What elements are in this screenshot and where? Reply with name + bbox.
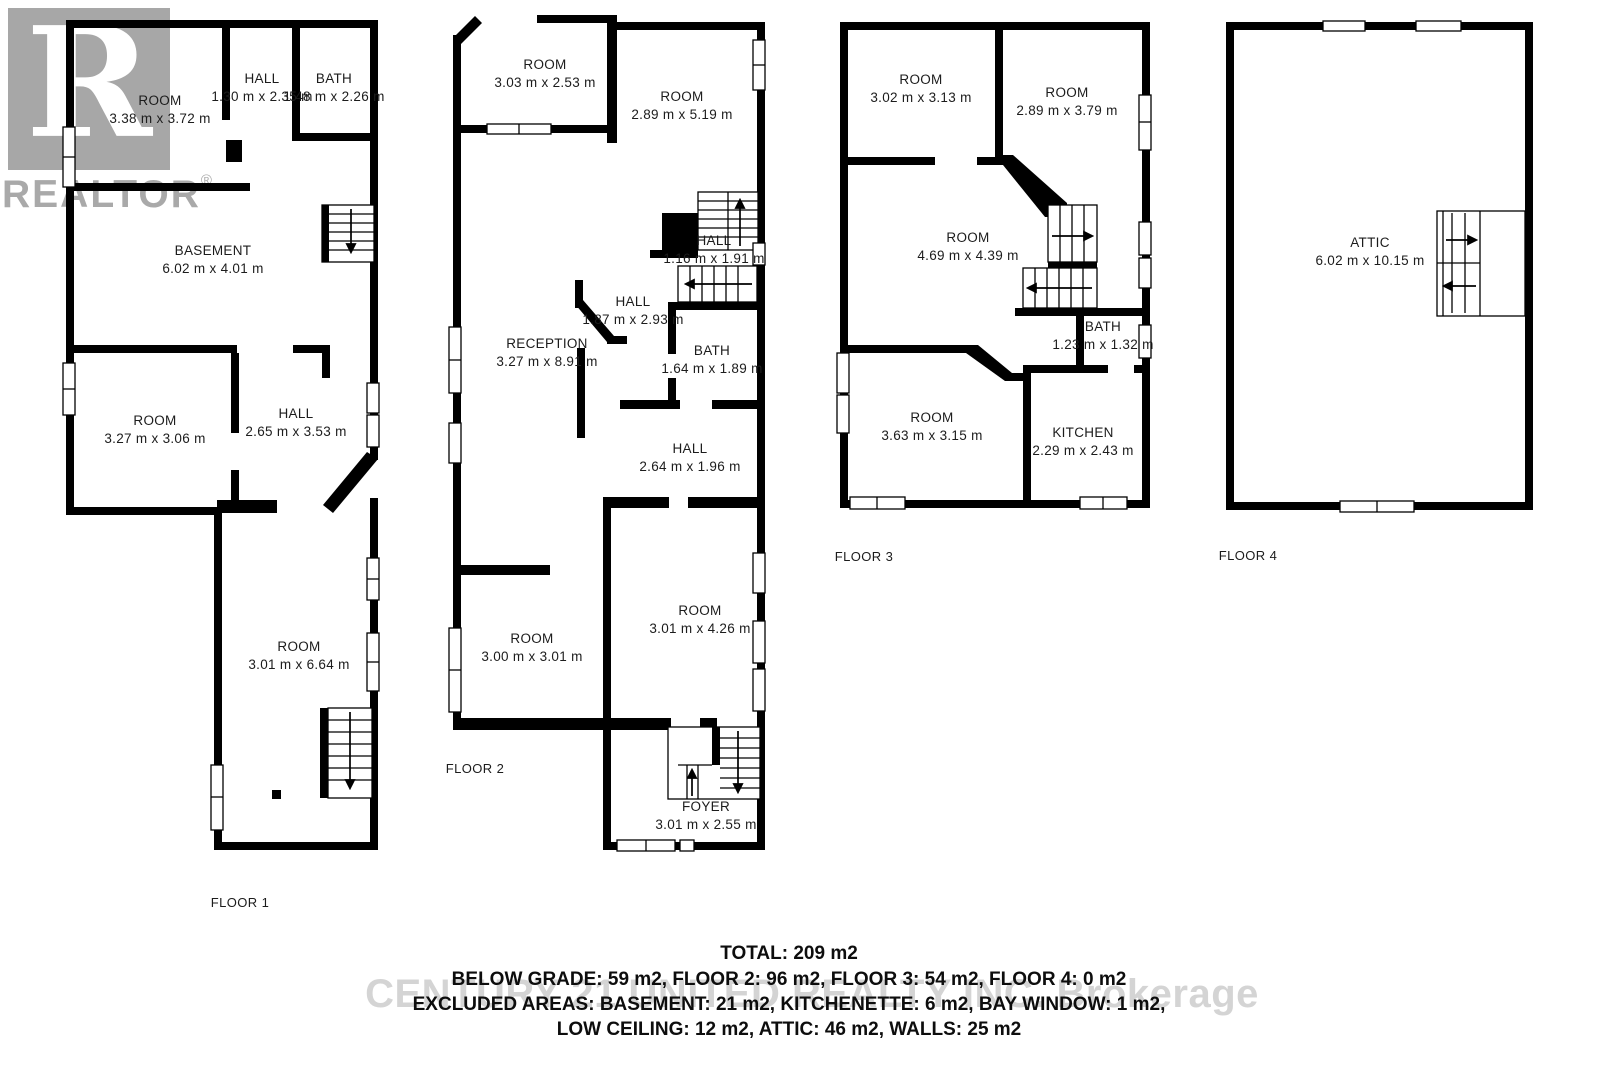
room-label: ATTIC6.02 m x 10.15 m	[1315, 234, 1424, 269]
room-label: ROOM3.02 m x 3.13 m	[870, 71, 971, 106]
room-label: BATH1.48 m x 2.26 m	[283, 70, 384, 105]
room-label: ROOM2.89 m x 3.79 m	[1016, 84, 1117, 119]
floor-caption: FLOOR 1	[211, 895, 269, 910]
floor2-plan	[449, 15, 765, 851]
area-summary: TOTAL: 209 m2 BELOW GRADE: 59 m2, FLOOR …	[0, 941, 1578, 1042]
room-label: ROOM3.03 m x 2.53 m	[494, 56, 595, 91]
room-label: ROOM4.69 m x 4.39 m	[917, 229, 1018, 264]
summary-line: BELOW GRADE: 59 m2, FLOOR 2: 96 m2, FLOO…	[0, 967, 1578, 992]
room-label: ROOM3.01 m x 4.26 m	[649, 602, 750, 637]
room-label: KITCHEN2.29 m x 2.43 m	[1032, 424, 1133, 459]
total-area: TOTAL: 209 m2	[0, 941, 1578, 967]
room-label: BATH1.23 m x 1.32 m	[1052, 318, 1153, 353]
room-label: ROOM3.38 m x 3.72 m	[109, 92, 210, 127]
room-label: ROOM3.01 m x 6.64 m	[248, 638, 349, 673]
room-label: BASEMENT6.02 m x 4.01 m	[162, 242, 263, 277]
room-label: HALL2.65 m x 3.53 m	[245, 405, 346, 440]
room-label: ROOM2.89 m x 5.19 m	[631, 88, 732, 123]
summary-line: LOW CEILING: 12 m2, ATTIC: 46 m2, WALLS:…	[0, 1017, 1578, 1042]
floor-caption: FLOOR 4	[1219, 548, 1277, 563]
room-label: ROOM3.63 m x 3.15 m	[881, 409, 982, 444]
room-label: BATH1.64 m x 1.89 m	[661, 342, 762, 377]
room-label: HALL2.64 m x 1.96 m	[639, 440, 740, 475]
summary-line: EXCLUDED AREAS: BASEMENT: 21 m2, KITCHEN…	[0, 992, 1578, 1017]
room-label: ROOM3.27 m x 3.06 m	[104, 412, 205, 447]
floor-caption: FLOOR 3	[835, 549, 893, 564]
room-label: HALL1.87 m x 2.93 m	[582, 293, 683, 328]
room-label: FOYER3.01 m x 2.55 m	[655, 798, 756, 833]
room-label: RECEPTION3.27 m x 8.91 m	[496, 335, 597, 370]
room-label: HALL1.16 m x 1.91 m	[663, 232, 764, 267]
floorplan-image: R REALTOR®	[0, 0, 1600, 1067]
room-label: ROOM3.00 m x 3.01 m	[481, 630, 582, 665]
floor-caption: FLOOR 2	[446, 761, 504, 776]
